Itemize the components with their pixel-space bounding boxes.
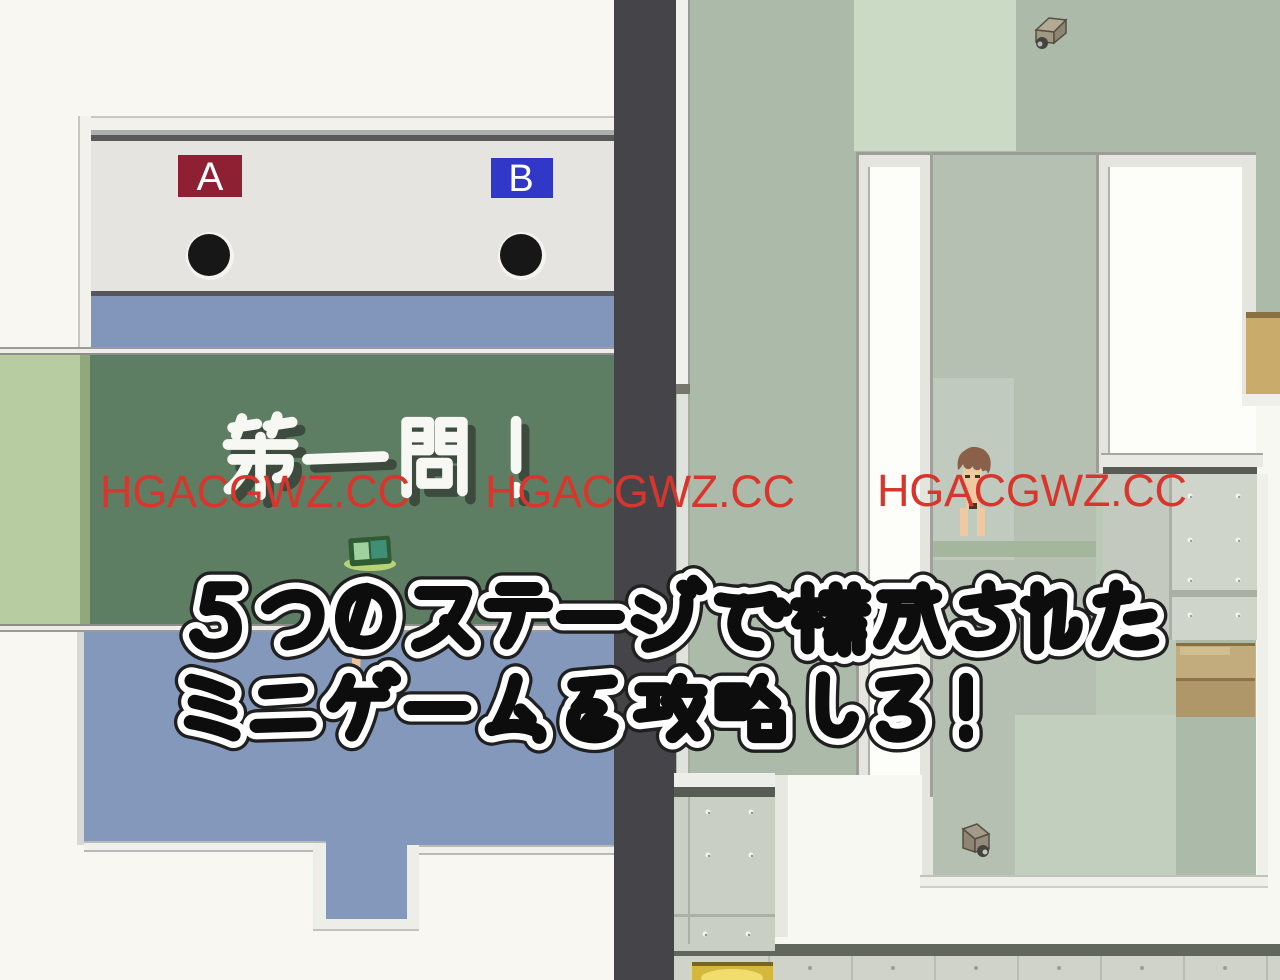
svg-text:B: B	[508, 158, 533, 200]
svg-text:HGACGWZ.CC: HGACGWZ.CC	[100, 466, 410, 517]
svg-text:HGACGWZ.CC: HGACGWZ.CC	[877, 465, 1187, 516]
svg-text:HGACGWZ.CC: HGACGWZ.CC	[485, 466, 795, 517]
svg-text:A: A	[197, 155, 224, 199]
